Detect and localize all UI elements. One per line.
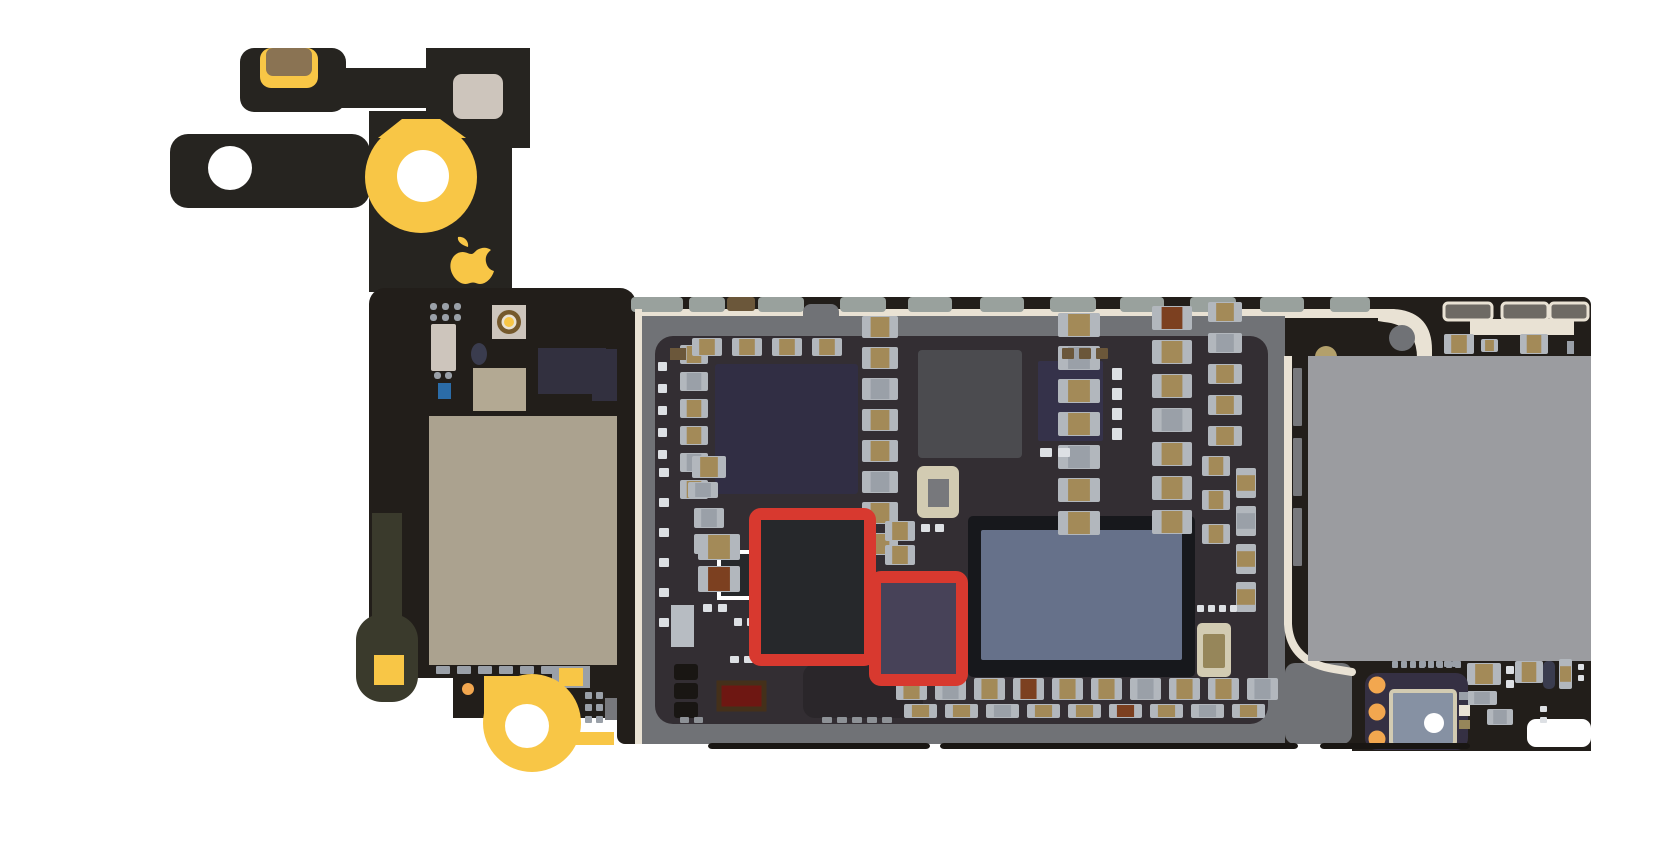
edge-segments [1293,508,1302,566]
via-orange [462,683,474,695]
module-pad-1 [1459,692,1468,700]
sq-dots-8 [1079,348,1091,359]
sq-dots-12 [1540,706,1547,712]
pads-row-left [499,666,513,674]
cap-col-e-body [1216,396,1234,414]
bracket [170,134,370,208]
cap-row-bottom-2-body [1117,705,1134,717]
shield-hook-fill [1389,325,1415,351]
pads-three [674,664,698,680]
pads-row-br [1401,661,1407,668]
cap-col-b-body [871,317,890,337]
capacitor-body [708,535,730,559]
module-ic [1391,691,1455,745]
capacitor-body [1451,335,1467,353]
sq-dots-5 [680,717,689,723]
dots-col [596,704,603,711]
cap-row-bottom-1-body [981,679,997,699]
board-top-tabs [758,297,804,312]
cap-col-c-body [1068,380,1090,402]
board-top-tabs [840,297,886,312]
test-dots [430,314,437,321]
grommet-bottom-hole [505,704,549,748]
flex-pad [453,74,503,119]
cap-col-g-body [1237,513,1255,529]
bottom-tabs [940,743,1298,749]
crystal-inner [1203,634,1225,668]
cap-col-d-body [1162,307,1183,329]
shield-band-right [1285,663,1352,744]
capacitor-body [1560,666,1571,682]
pads-row-br2 [1444,661,1450,667]
sq-dots-1 [718,604,727,612]
board-top-tabs [1260,297,1304,312]
cap-navy [1543,661,1555,689]
sq-col-b [659,588,669,597]
module-hole [1424,713,1444,733]
sq-col-b [659,618,669,627]
antenna-connector-center [504,317,514,327]
cap-col-c-body [1068,446,1090,468]
connector-pad [266,48,312,76]
bottom-tabs [1320,743,1470,749]
pads-three [674,683,698,699]
sq-dots-4 [1230,605,1237,612]
sq-col-a [658,406,667,415]
capacitor-body [1474,692,1490,704]
test-dots [454,303,461,310]
pads-three [674,702,698,718]
antenna-pad-yellow [374,655,404,685]
capacitor-body [1485,340,1494,351]
capacitor-body [892,522,908,540]
sq-dots-9 [1058,448,1070,457]
cap-col-g-body [1237,475,1255,491]
sq-col-a [658,450,667,459]
sq-dots-7 [730,656,739,663]
cap-col-b-body [871,472,890,492]
cap-row-bottom-1-body [1215,679,1231,699]
tabs-right [1550,303,1588,320]
cap-row-bottom-1-body [1059,679,1075,699]
cap-col-c-body [1068,314,1090,336]
sq-dots-11 [1578,675,1584,681]
screw-hole-left [208,146,252,190]
cap-row-bottom-1-body [1098,679,1114,699]
cap-row-bottom-1-body [1254,679,1270,699]
pads-row-br2 [1436,661,1442,667]
pads-row-br [1410,661,1416,668]
bar-cream [1470,319,1574,335]
capacitor-body [1475,664,1493,684]
cap-brown-small [670,348,686,360]
cap-row-bottom-2-body [912,705,929,717]
cap-col-f-body [1209,525,1224,543]
pads-row-left [457,666,471,674]
test-dots [430,303,437,310]
highlight-chip-2 [877,579,960,678]
sq-col-a [658,428,667,437]
sq-dots-10 [1506,680,1514,688]
cap-col-f-body [1209,491,1224,509]
chip-gray [918,350,1022,458]
cap-row-bottom-2-body [1035,705,1052,717]
dots-col [596,692,603,699]
cap-col-b-body [871,379,890,399]
highlight-chip-1 [757,517,869,656]
pcb-diagram [40,16,1668,829]
cap-row-bottom-2-body [994,705,1011,717]
sq-col-c [1112,428,1122,440]
cap-col-c-body [1068,479,1090,501]
sq-dots-6 [837,717,847,723]
shield-border-left [635,309,642,744]
test-dots [442,303,449,310]
sq-dots-8 [1096,348,1108,359]
shield-small [431,324,456,371]
tab-brown [727,297,755,311]
shield-right-panel [1308,356,1591,661]
component-blue [438,383,451,399]
sq-col-b [659,528,669,537]
dots-col [585,716,592,723]
cap-row-top-body [779,339,795,355]
test-dots-2 [445,372,452,379]
sq-dots-4 [1208,605,1215,612]
sq-dots-4 [1219,605,1226,612]
sq-dots-6 [822,717,832,723]
sq-dots-5 [694,717,703,723]
tabs-right [1502,303,1548,320]
dots-col [585,692,592,699]
board-top-tabs [908,297,952,312]
chip-large-navy [715,364,858,494]
grommet-bottom-arm [556,732,614,745]
cap-col-e-body [1216,365,1234,383]
pads-row-left [520,666,534,674]
sq-dots-6 [852,717,862,723]
sq-col-a [658,362,667,371]
dots-col [585,704,592,711]
board-svg [40,16,1668,829]
cap-sliver [1567,341,1574,354]
edge-segments [1293,368,1302,426]
cap-col-e-body [1216,334,1234,352]
pads-row-br2 [1428,661,1434,667]
tabs-right [1444,303,1492,320]
component-oval [471,343,487,365]
sq-col-c [1112,408,1122,420]
cap-row-bottom-2-body [1240,705,1257,717]
board-top-tabs [980,297,1024,312]
capacitor-body [708,567,730,591]
cap-col-b-body [871,441,890,461]
pads-row-left [478,666,492,674]
cap-row-bottom-2-body [953,705,970,717]
sq-col-b [659,558,669,567]
cap-row-bottom-1-body [1176,679,1192,699]
capacitor-body [1522,662,1537,682]
component-tan [473,368,526,411]
cap-col-f-body [1209,457,1224,475]
pads-row-left [436,666,450,674]
test-dots [442,314,449,321]
cap-col-g-body [1237,589,1255,605]
cap-col-d-body [1162,341,1183,363]
chip-die [981,530,1182,660]
cap-col-d-body [1162,375,1183,397]
pads-row-br2 [1452,661,1458,667]
cap-row-bottom-1-body [1020,679,1036,699]
sq-col-b [659,468,669,477]
cap-col-g-body [1237,551,1255,567]
board-top-tabs [1050,297,1096,312]
connector-darkred [719,683,764,709]
board-top-tabs [689,297,725,312]
cap-col-d-body [1162,409,1183,431]
shield-border-right [1284,356,1292,606]
sq-dots-8 [1062,348,1074,359]
pad-yellow [559,668,583,686]
capacitor-body [1527,335,1542,353]
cap-col-a-body [687,373,702,390]
sq-dots-6 [867,717,877,723]
edge-segments [1293,438,1302,496]
module-contact-2 [1369,704,1386,721]
sq-dots-6 [882,717,892,723]
grommet-top-hole [397,150,449,202]
cap-row-top-body [699,339,715,355]
module-contact-1 [1369,677,1386,694]
capacitor-body [1493,710,1507,724]
sq-col-c [1112,368,1122,380]
component-navy-2 [592,349,618,401]
cap-row-top-body [819,339,835,355]
sq-dots-10 [1506,666,1514,674]
sq-dots-4 [1197,605,1204,612]
sq-dots-9 [1040,448,1052,457]
shield-notch [803,304,839,330]
notch-white [1527,719,1591,747]
cap-row-bottom-2-body [1076,705,1093,717]
pad-lightgray [671,605,694,647]
cap-col-b-body [871,410,890,430]
cap-pair-body [701,509,717,527]
sq-dots-11 [1578,664,1584,670]
pads-row-br [1392,661,1398,668]
cap-row-top-body [739,339,755,355]
antenna-strip [372,513,402,631]
cap-row-bottom-2-body [1199,705,1216,717]
dots-col [596,716,603,723]
component-dark-small [605,698,619,720]
ic-frame-inner [928,479,949,507]
sq-dots-2 [734,618,742,626]
module-pad-2 [1459,705,1470,716]
cap-col-b-body [871,348,890,368]
cap-col-d-body [1162,511,1183,533]
flex-arm [330,68,442,108]
test-dots-2 [434,372,441,379]
sq-col-a [658,384,667,393]
cap-col-d-body [1162,443,1183,465]
capacitor-body [892,546,908,564]
cap-col-c-body [1068,512,1090,534]
cap-col-e-body [1216,303,1234,321]
sq-dots-12 [1540,717,1547,723]
sq-dots-1 [703,604,712,612]
cap-col-a-body [687,400,702,417]
cap-row-bottom-2-body [1158,705,1175,717]
cap-col-a-body [687,427,702,444]
cap-col-d-body [1162,477,1183,499]
sq-dots-3 [921,524,930,532]
sq-col-c [1112,388,1122,400]
sq-col-b [659,498,669,507]
bottom-tabs [708,743,930,749]
pads-row-br2 [1420,661,1426,667]
capacitor-body [700,457,718,477]
cap-row-bottom-1-body [1137,679,1153,699]
emi-shield-left [429,416,617,665]
sq-dots-3 [935,524,944,532]
capacitor-body [695,483,711,497]
cap-col-e-body [1216,427,1234,445]
cap-col-c-body [1068,413,1090,435]
module-pad-3 [1459,720,1470,729]
board-top-tabs [1330,297,1370,312]
test-dots [454,314,461,321]
